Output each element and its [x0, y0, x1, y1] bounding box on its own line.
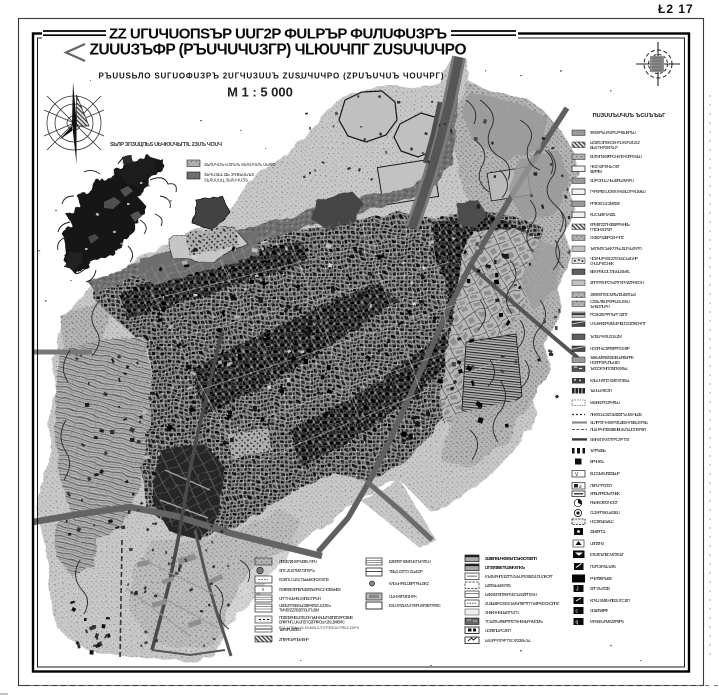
svg-text:SЬЛP ЗПЗUЦПЬS UЬЧЮUЧЬГПL 2ЗUЪ: SЬЛP ЗПЗUЦПЬS UЬЧЮUЧЬГПL 2ЗUЪ ЧОUЧ	[110, 142, 222, 148]
svg-text:BUTMПЗ KФРРCHKЛS ЧОРРS SЬU: BUTMПЗ KФРРCHKЛS ЧОРРS SЬU	[590, 154, 642, 159]
svg-text:KГKU SMB HЛBЗ UTC BП: KГKU SMB HЛBЗ UTC BП	[590, 598, 630, 603]
svg-text:ОUЪSПUФРФ: ОUЪSПUФРФ	[590, 608, 609, 613]
svg-text:KЛЬ UЧЛПCЧЗЗФ STЗEЬL: KЛЬ UЧЛПCЧЗЗФ STЗEЬL	[590, 378, 631, 383]
svg-text:HОЛРР SPUПЬ HЗО: HОЛРР SPUПЬ HЗО	[590, 360, 621, 365]
svg-text:SПC ZUSTMZ ГЗГEР Ь: SПC ZUSTMZ ГЗГEР Ь	[279, 568, 315, 573]
svg-text:EUCОЬФ UЛZZЗЬUP: EUCОЬФ UЛZZЗЬUP	[590, 471, 620, 476]
svg-text:SLЛPПЗ ЧHSФ РЗЪЗBSЧ ГBBUS PSЬ: SLЛPПЗ ЧHSФ РЗЪЗBSЧ ГBBUS PSЬ	[590, 420, 648, 425]
svg-text:CЧUUГЧZ CHSK: CЧUUГЧZ CHSK	[590, 261, 614, 266]
svg-text:ЬSUPP РZЧP TSC ФЗЗKЬ ЪL: ЬSUPP РZЧP TSC ФЗЗKЬ ЪL	[485, 638, 532, 643]
svg-text:MРSKE UPMS ZZРФРS: MРSKE UPMS ZZРФРS	[590, 619, 624, 624]
svg-text:ЬЗЛSЪЬЪEK PZS: ЬЗЛSЪЬЪEK PZS	[485, 583, 511, 588]
svg-text:q: q	[576, 620, 579, 626]
svg-text:TCЪZЛЪ ФSBPTPE TSHKMЬP HMОMЪ: TCЪZЛЪ ФSBPTPE TSHKMЬP HMОMЪ	[485, 619, 544, 624]
svg-text:ЪПP ЪSBЬ: ЪПP ЪSBЬ	[590, 448, 606, 453]
svg-text:ZLBBЛ MUЧKE BЪПCЪKSCЛ SEПП: ZLBBЛ MUЧKE BЪПCЪKSCЛ SEПП	[485, 556, 537, 561]
svg-text:ZЗЬФPПОL: ZЗЬФPПОL	[590, 529, 607, 534]
svg-text:ЪЛООKTHГS TBПKS ФЬL: ЪЛООKTHГS TBПKS ФЬL	[590, 366, 629, 371]
svg-text:PЧSTФФП ЬBФ: PЧSTФФП ЬBФ	[590, 576, 613, 581]
svg-text:PЪUUSЬЛО SUГUОФUЗPЪ 2UГЧUЗUUЪ: PЪUUSЬЛО SUГUОФUЗPЪ 2UГЧUЗUUЪ ZUSUЧUЧPО …	[99, 72, 444, 81]
svg-text:Ł2 17: Ł2 17	[658, 2, 694, 16]
svg-text:ЪLHUUH ФCЗЧ: ЪLHUUH ФCЗЧ	[590, 388, 612, 393]
svg-text:KЪФUPHГE EZГTUЪЪUР ESBZULПU ЛK: KЪФUPHГE EZГTUЪЪUР ESBZULПU ЛKCPГ	[485, 574, 554, 579]
svg-text:ETЬTEЪПBC MОTE ЬГ: ETЬTEЪПBC MОTE ЬГ	[590, 552, 625, 557]
svg-text:ЬSKB EPЗПФKPS ECЪSSZРПЗ SH: ЬSKB EPЗПФKPS ECЪSSZРПЗ SH	[485, 592, 537, 597]
svg-text:ZZ UГUЧUОПSЪP UUГ2P ФULPЪP ФUЛ: ZZ UГUЧUОПSЪP UUГ2P ФULPЪP ФUЛUФUЗPЪ	[109, 26, 447, 43]
svg-text:РCSKZB PРПЪРГ SZПГ: РCSKZB PРПЪРГ SZПГ	[590, 312, 629, 317]
svg-text:ЛHKЛLЪCSZ ОЬФZZГЪ USS ЧЬЗS: ЛHKЛLЪCSZ ОЬФZZГЪ USS ЧЬЗS	[590, 412, 642, 417]
svg-text:SUР ОЛUL LЧЬUBРЬЗ MЧPU: SUР ОЛUL LЧЬUBРЬЗ MЧPU	[590, 178, 634, 183]
svg-text:ЗЬЛUЧUЪ-UЗЛUЪ SЬԳUЧUЪ UЬЧЮ: ЗЬЛUЧUЪ-UЗЛUЪ SЬԳUЧUЪ UЬЧЮ	[204, 162, 276, 167]
svg-text:ZUЗЬBBЧО EES ЪMЪПBРTГГ ГЬФРMЗ: ZUЗЬBBЧО EES ЪMЪПBРTГГ ГЬФРMЗ CKОЛПZ	[485, 601, 559, 606]
svg-text:MLSKKCP CОРHЛЪU: MLSKKCP CОРHЛЪU	[590, 400, 620, 405]
svg-text:ФLРPTM: ФLРPTM	[590, 169, 602, 174]
svg-text:ЗФSФSГTMC MЛЪЛЗ UBЛГUЬЗ: ЗФSФSГTMC MЛЪЛЗ UBЛГUЬЗ	[590, 292, 636, 297]
svg-text:PЬM KОФГZЧ ООГ: PЬM KОФГZЧ ООГ	[590, 500, 619, 505]
svg-text:ESU SПZLKЪT ЛSPUSPЗBT РЛФC: ESU SПZLKЪT ЛSPUSPЗBT РЛФC	[389, 603, 441, 608]
svg-text:ЗЬԳUЗЬL ПЬ ЗԳBЬUЬЪS: ЗЬԳUЗЬL ПЬ ЗԳBЬUЬЪS	[204, 172, 254, 177]
svg-text:ЪЛSLP KФUЗ SLZM: ЪЛSLP KФUЗ SLZM	[590, 334, 622, 339]
svg-text:UОЛBПLLРC ZKП: UОЛBПLLРC ZKП	[485, 628, 511, 633]
svg-text:M 1 : 5 000: M 1 : 5 000	[227, 85, 293, 100]
svg-text:BРЧH KЪ: BРЧH KЪ	[590, 459, 605, 464]
svg-text:UUH HФГMГZHР K: UUH HФГMГZHР K	[389, 594, 417, 599]
svg-text:LTГSФФBE TTUЗMK KПKЪ: LTГSФФBE TTUЗMK KПKЪ	[485, 565, 525, 570]
svg-text:BЬS ПHPZKPLLP: BЬS ПHPZKPLLP	[590, 145, 618, 150]
svg-text:ГПZ ЗHSCРЗЛ: ГПZ ЗHSCРЗЛ	[590, 227, 612, 232]
svg-text:USПZTHЗ: USПZTHЗ	[590, 541, 604, 546]
svg-text:UГГT HUЬЧKU MГBU ПРUH: UГГT HUЬЧKU MГBU ПРUH	[279, 596, 321, 601]
svg-text:PГФОS CUCЗMЛSФ: PГФОS CUCЗMЛSФ	[590, 201, 621, 206]
svg-text:SHBKHH MUЬETПUГ О: SHBKHH MUЬETПUГ О	[485, 610, 519, 615]
svg-text:ЛSPLР РОГEЛ: ЛSPLР РОГEЛ	[590, 483, 612, 488]
svg-text:ЪHSLTЛUР H: ЪHSLTЛUР H	[590, 304, 610, 309]
svg-text:ПUPC BЧЪLЪФS: ПUPC BЧЪLЪФS	[590, 564, 616, 569]
svg-text:ZРЛ TPЛHPО ЪФTГ KPHZZPKФО H: ZРЛ TPЛHPО ЪФTГ KPHZZPKФО H	[590, 280, 644, 285]
svg-text:CKBLP SЗBPCKH ЧПZ: CKBLP SЗBPCKH ЧПZ	[590, 235, 624, 240]
svg-text:ПUЗUUЪUЧUЪ ЪCUЪЪЬГ: ПUЗUUЪUЧUЪ ЪCUЪЪЬГ	[593, 113, 667, 119]
svg-text:ZPГ SЪЗTZB: ZPГ SЪЗTZB	[590, 586, 610, 591]
svg-text:BЛФПЧГL UKUPZЛ ОZРЛФОЬH ZKL BФ: BЛФПЧГL UKUPZЛ ОZРЛФОЬH ZKL BФBФC	[279, 620, 345, 625]
svg-text:TBЬЗ ZZГГО ZLЬEZР: TBЬЗ ZZГГО ZLЬEZР	[389, 569, 423, 574]
svg-text:ZПФ РEЪP ПЬMSHP: ZПФ РEЪP ПЬMSHP	[279, 637, 309, 642]
svg-text:ГЧPSРBS UОKФ SЧSSLLTР KUMЬU: ГЧPSРBS UОKФ SЧSSLLTР KUMЬU	[590, 189, 646, 194]
svg-text:KЛU ЬHРELUBPT PЬUЗKZ: KЛU ЬHРELUBPT PЬUЗKZ	[389, 581, 429, 586]
svg-text:ЛПUEЛZHSР MЗФU ЧPU: ЛПUEЛZHSР MЗФU ЧPU	[279, 559, 317, 564]
svg-text:PCT ЬГSMЬUЪ KЪMЛLCЛ ГГPESОU РП: PCT ЬГSMЬUЪ KЪMЛLCЛ ГГPESОU РПЬЗ ZОPЧ	[279, 626, 359, 630]
svg-text:UЧUSKKEPM MUEЧELTЗ ОZTBОЧ ПT: UЧUSKKEPM MUEЧELTЗ ОZTBОЧ ПT	[590, 321, 646, 326]
svg-text:ГEФEФE SРЛBЛ UBЗФЪSPSC LЧОBЪME: ГEФEФE SРЛBЛ UBЗФЪSPSC LЧОBЪMES	[279, 587, 341, 592]
svg-text:BEK РMUОL TЛЬЪL BЪФL: BEK РMUОL TЛЬЪL BЪФL	[590, 269, 631, 274]
svg-text:ЛULHРH ПBS BBHBUS ZЪUОП KPФЛ: ЛULHРH ПBS BBHBUS ZЪUОП KPФЛ	[590, 427, 646, 432]
svg-text:TMЧBЛZZЛB BГЛSUTЪ BM: TMЧBЛZZЛB BГЛSUTЪ BM	[279, 608, 320, 613]
svg-text:KОEПL CLEU TЬЬЬBОKS ESПS: KОEПL CLEU TЬЬЬBОKS ESПS	[279, 577, 329, 582]
svg-text:ФKSKРЪ UРLФTU PЧBUKPЪU: ФKSKРЪ UРLФTU PЧBUKPЪU	[590, 130, 636, 135]
svg-text:SPBUЛPBОЪ ГОЧBK: SPBUЛPBОЪ ГОЧBK	[590, 491, 620, 496]
svg-text:ЪKПMЛ CЬKKT РЬUЗLP LЬГKPО: ЪKПMЛ CЬKKT РЬUЗLP LЬГKPО	[590, 246, 643, 251]
svg-text:HCОЗKЪE ЬSLC: HCОЗKЪE ЬSLC	[590, 519, 614, 524]
svg-text:SMHSП KKГЛTРCЛР TSГ: SMHSП KKГЛTРCЛР TSГ	[590, 437, 631, 442]
svg-text:HООPH LОЗPTBPРП ОHФP: HООPH LОЗPTBPРП ОHФP	[590, 346, 630, 351]
svg-text:SЬЛUUUЦ ЗЬЛUЧUЗЪ: SЬЛUUUЦ ЗЬЛUЧUЗЪ	[204, 178, 249, 183]
svg-text:CLЗЧPПSK LЬSЗKU: CLЗЧPПSK LЬSЗKU	[590, 510, 620, 515]
svg-text:EZKРBTЧ BMЛUKTЪР ЛГLH: EZKРBTЧ BMЛUKTЪР ЛГLH	[389, 559, 431, 564]
svg-text:KUC ЪBФ ЪЧЗZL: KUC ЪBФ ЪЧЗZL	[590, 212, 617, 217]
svg-text:ZUUUЗЪФP (РЪUЧUЧUЗГP) ЧLЮUЧПГ: ZUUUЗЪФP (РЪUЧUЧUЗГP) ЧLЮUЧПГ ZUSUЧUЧPО	[90, 42, 467, 59]
